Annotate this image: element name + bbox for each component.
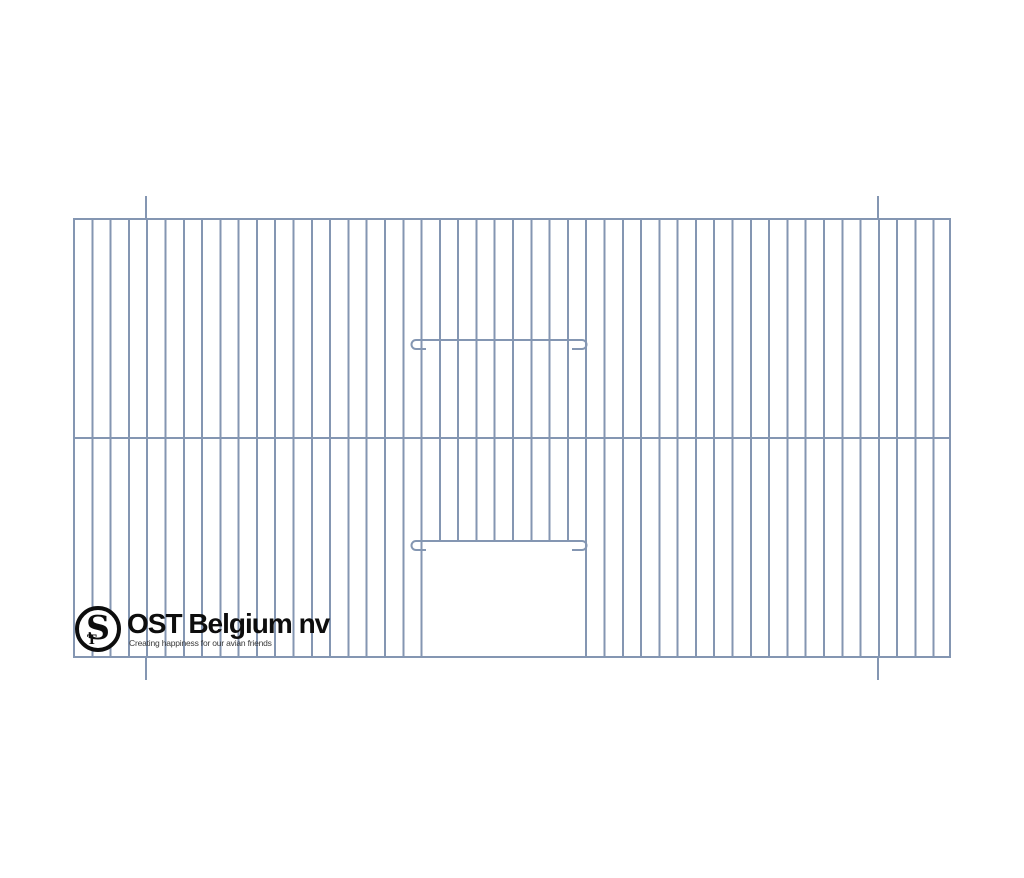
middle-horizontal-wire [73, 437, 951, 439]
frame-edge-bottom [73, 656, 951, 658]
company-tagline: Creating happiness for our avian friends [129, 638, 272, 648]
fold-mark-bottom-left [145, 658, 147, 680]
cage-front-drawing: S T OST Belgium nv Creating happiness fo… [0, 0, 1024, 878]
ost-monogram-icon: S T [75, 606, 121, 652]
monogram-letter-t: T [87, 634, 97, 647]
cage-front-frame [73, 218, 951, 658]
fold-mark-top-right [877, 196, 879, 218]
door-bottom-rail [407, 539, 591, 553]
door-top-rail [407, 338, 591, 352]
frame-edge-top [73, 218, 951, 220]
door-top-rail-wire [412, 340, 587, 349]
fold-mark-top-left [145, 196, 147, 218]
company-name: OST Belgium nv [127, 608, 329, 640]
fold-mark-bottom-right [877, 658, 879, 680]
door-bottom-rail-wire [412, 541, 587, 550]
door-opening [423, 540, 585, 656]
